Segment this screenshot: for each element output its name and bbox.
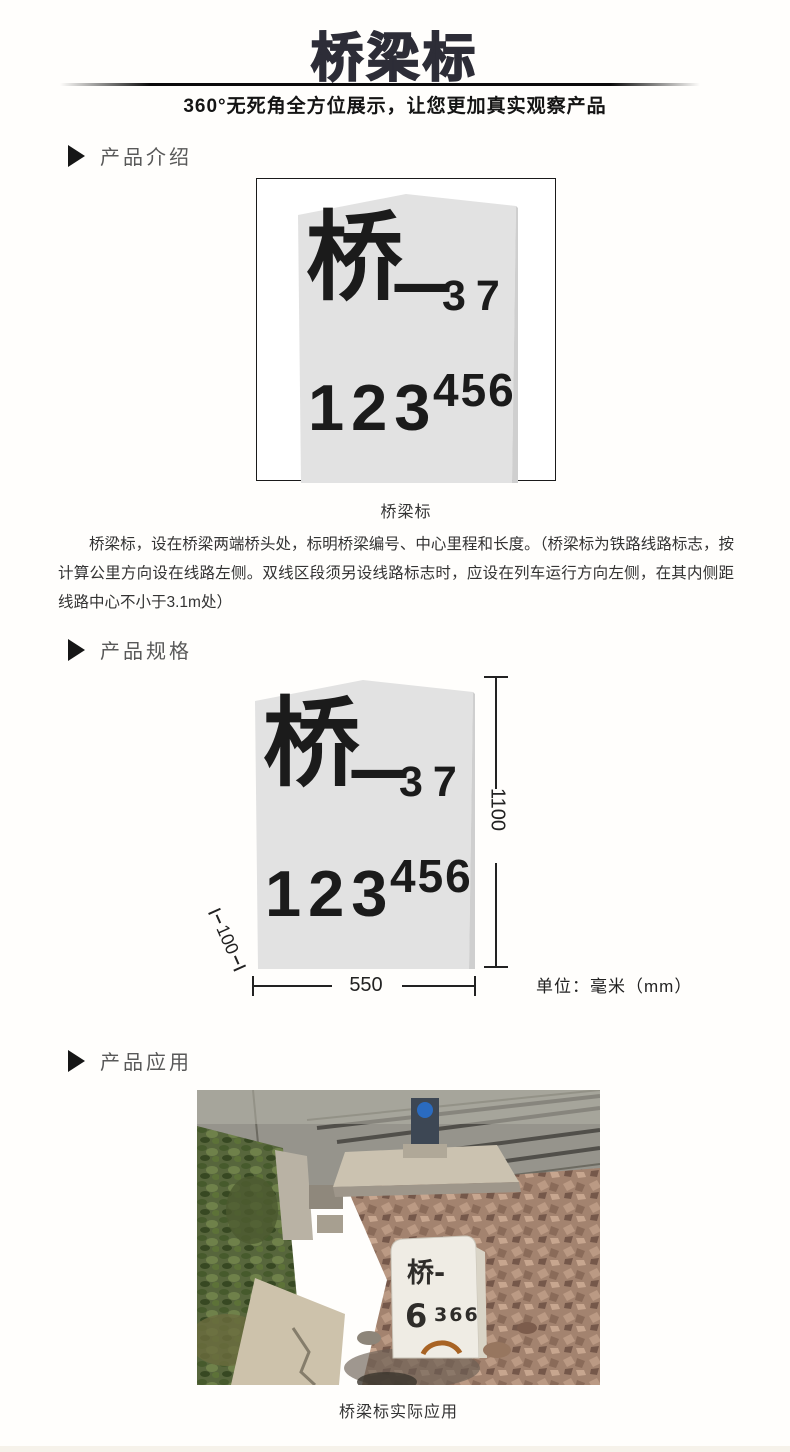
section-header-intro: 产品介绍 (68, 141, 192, 170)
dimension-tick (209, 908, 222, 915)
unit-note: 单位：毫米（mm） (536, 972, 692, 997)
height-dimension-line (495, 677, 497, 789)
dimension-tick (252, 976, 254, 996)
marker-character: 桥 (263, 695, 360, 792)
section-label: 产品介绍 (100, 141, 192, 170)
page-bottom-strip (0, 1446, 790, 1452)
marker-dash: — (396, 259, 448, 311)
marker-mileage-main: 123 (265, 861, 394, 926)
height-dimension-line (495, 863, 497, 968)
marker-dash: — (353, 745, 405, 797)
photo-stone-number-small: 366 (434, 1304, 480, 1326)
width-dimension-line (252, 985, 332, 987)
product-description: 桥梁标，设在桥梁两端桥头处，标明桥梁编号、中心里程和长度。（桥梁标为铁路线路标志… (58, 530, 734, 617)
marker-character: 桥 (306, 209, 403, 306)
triangle-bullet-icon (68, 639, 85, 661)
photo-stone-label: 桥- (407, 1258, 445, 1289)
section-label: 产品规格 (100, 635, 192, 664)
section-label: 产品应用 (100, 1046, 192, 1075)
marker-serial-number: 37 (442, 275, 510, 318)
dimension-tick (484, 676, 508, 678)
product-detail-page: 桥梁标 360°无死角全方位展示，让您更加真实观察产品 产品介绍 桥 — 37 … (0, 0, 790, 1452)
marker-serial-number: 37 (399, 761, 467, 804)
intro-figure-frame: 桥 — 37 123 456 (256, 178, 556, 481)
intro-figure-caption: 桥梁标 (256, 498, 556, 522)
application-figure-caption: 桥梁标实际应用 (197, 1398, 600, 1422)
title-divider-line (60, 83, 700, 86)
application-photo: 桥- 6 366 (197, 1090, 600, 1385)
section-header-specs: 产品规格 (68, 635, 192, 664)
dimension-tick (484, 966, 508, 968)
marker-mileage-sup: 456 (433, 367, 516, 413)
dimension-tick (474, 976, 476, 996)
bridge-marker-illustration: 桥 — 37 123 456 (296, 191, 518, 483)
width-dimension-line (402, 985, 476, 987)
page-title: 桥梁标 (0, 16, 790, 91)
height-dimension-value: 1100 (486, 782, 509, 838)
spec-diagram-stone: 桥 — 37 123 456 (253, 677, 475, 969)
base-dimension-line (234, 956, 239, 965)
photo-stone-number-big: 6 (405, 1297, 427, 1335)
railway-scene-illustration: 桥- 6 366 (197, 1090, 600, 1385)
section-header-application: 产品应用 (68, 1046, 192, 1075)
width-dimension-value: 550 (330, 974, 402, 997)
triangle-bullet-icon (68, 145, 85, 167)
base-dimension-value: 100 (213, 922, 242, 957)
marker-mileage-main: 123 (308, 375, 437, 440)
triangle-bullet-icon (68, 1050, 85, 1072)
marker-mileage-sup: 456 (390, 853, 473, 899)
base-dimension: 100 (206, 907, 253, 984)
page-subtitle: 360°无死角全方位展示，让您更加真实观察产品 (0, 91, 790, 118)
base-dimension-line (216, 914, 221, 923)
dimension-tick (234, 964, 247, 971)
